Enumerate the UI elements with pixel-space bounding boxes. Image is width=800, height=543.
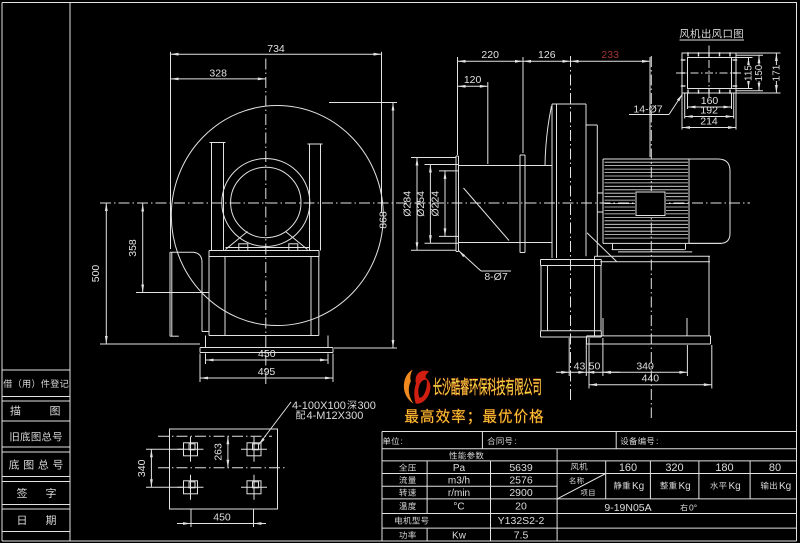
svg-text:Y132S2-2: Y132S2-2 [498,515,545,527]
svg-text:734: 734 [267,43,285,55]
svg-text:233: 233 [601,49,619,61]
svg-text:450: 450 [213,512,231,524]
svg-text:r/min: r/min [448,488,470,499]
svg-text:214: 214 [700,116,718,128]
svg-text:150: 150 [754,64,765,81]
svg-text:495: 495 [258,366,276,378]
svg-text:440: 440 [642,373,660,385]
svg-text:0°: 0° [689,503,697,513]
svg-text:Ø224: Ø224 [430,191,442,217]
svg-text:80: 80 [769,462,781,474]
svg-text::: : [656,436,658,446]
svg-text:5639: 5639 [509,462,533,474]
svg-text:160: 160 [619,462,637,474]
svg-text:4-M12X300: 4-M12X300 [307,410,364,422]
svg-text:358: 358 [127,239,139,257]
svg-text:20: 20 [515,501,527,513]
svg-text:Kg: Kg [729,481,741,492]
svg-text:320: 320 [665,462,683,474]
svg-text:120: 120 [464,74,482,86]
svg-text:Kg: Kg [679,481,691,492]
svg-text:220: 220 [481,49,499,61]
svg-text:868: 868 [378,211,390,229]
svg-text:115: 115 [744,65,755,81]
svg-text:14-Ø7: 14-Ø7 [633,104,662,116]
svg-text:340: 340 [636,360,654,372]
svg-text:450: 450 [258,348,276,360]
svg-text:Kg: Kg [632,481,644,492]
svg-text:43: 43 [574,360,586,372]
svg-text:°C: °C [453,502,464,513]
svg-text:263: 263 [213,443,225,461]
svg-text:Ø254: Ø254 [415,191,427,217]
svg-text:Ø284: Ø284 [402,191,414,217]
svg-text:180: 180 [715,462,733,474]
svg-text:8-Ø7: 8-Ø7 [484,271,508,283]
svg-text:500: 500 [90,265,102,283]
svg-text:Pa: Pa [453,463,466,474]
svg-text:9-19N05A: 9-19N05A [604,502,651,514]
svg-text:328: 328 [209,68,227,80]
svg-text:50: 50 [589,360,601,372]
svg-text:7.5: 7.5 [514,530,529,542]
svg-text::: : [401,436,403,446]
svg-text:171: 171 [772,64,783,81]
svg-text:Kw: Kw [452,531,467,542]
svg-text:Kg: Kg [779,481,791,492]
svg-text:126: 126 [538,49,556,61]
svg-text:340: 340 [136,459,148,477]
svg-text:2576: 2576 [509,475,533,487]
svg-text:m3/h: m3/h [448,476,470,487]
svg-text::: : [515,436,517,446]
svg-text:2900: 2900 [509,487,533,499]
